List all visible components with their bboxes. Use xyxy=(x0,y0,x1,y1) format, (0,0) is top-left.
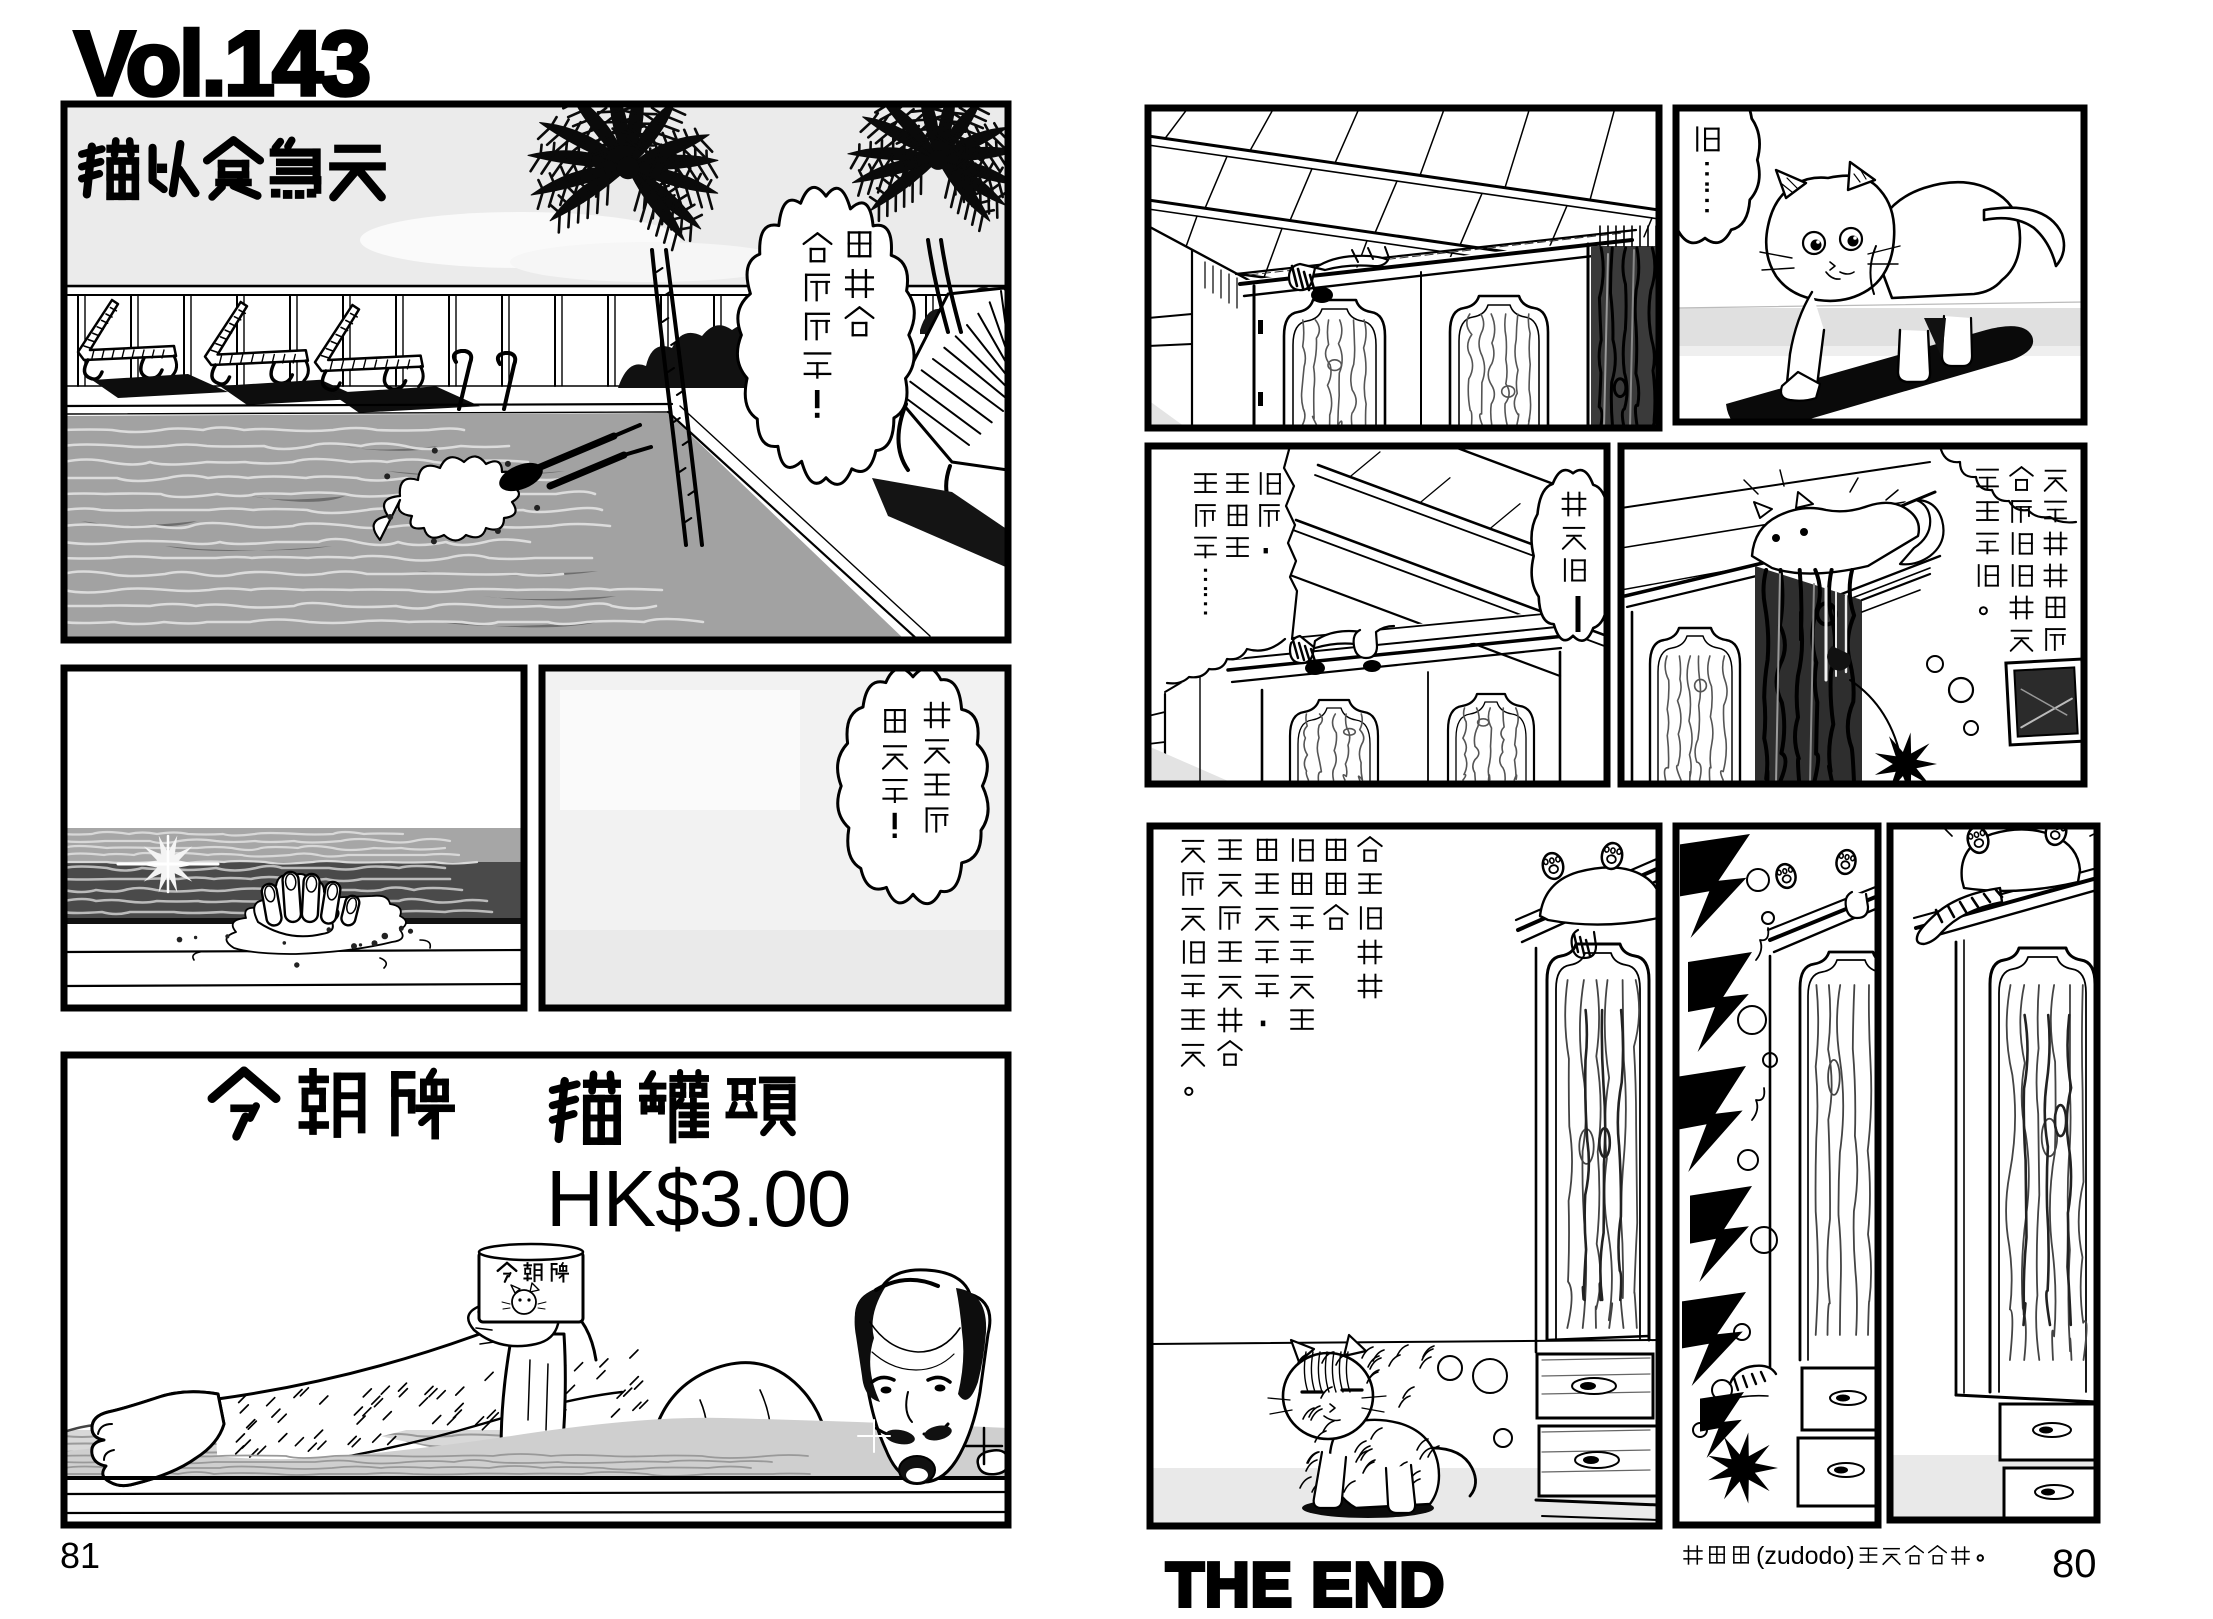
svg-text:HK$3.00: HK$3.00 xyxy=(546,1154,850,1243)
svg-text:THE END: THE END xyxy=(1166,1551,1445,1619)
svg-text:Vol.143: Vol.143 xyxy=(74,13,368,115)
svg-text:80: 80 xyxy=(2052,1542,2097,1586)
svg-text:(zudodo): (zudodo) xyxy=(1756,1542,1855,1570)
svg-text:81: 81 xyxy=(60,1535,100,1576)
